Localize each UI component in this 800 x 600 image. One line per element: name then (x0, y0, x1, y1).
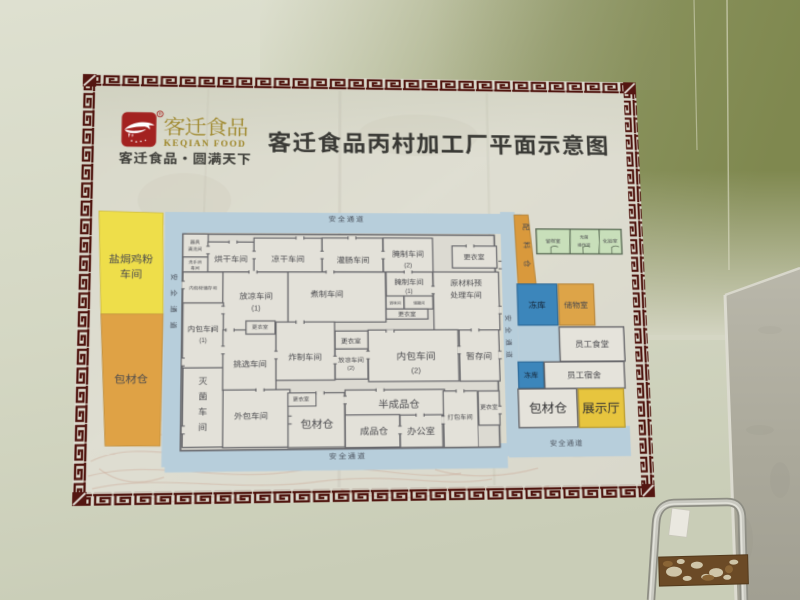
svg-text:(2): (2) (411, 366, 421, 375)
svg-text:R: R (158, 112, 161, 117)
svg-text:KEQIAN FOOD: KEQIAN FOOD (164, 138, 246, 149)
svg-text:(1): (1) (405, 289, 413, 295)
svg-text:(2): (2) (347, 366, 354, 372)
svg-text:(1): (1) (199, 338, 207, 344)
svg-text:(2): (2) (404, 262, 412, 269)
svg-text:(1): (1) (252, 305, 261, 312)
